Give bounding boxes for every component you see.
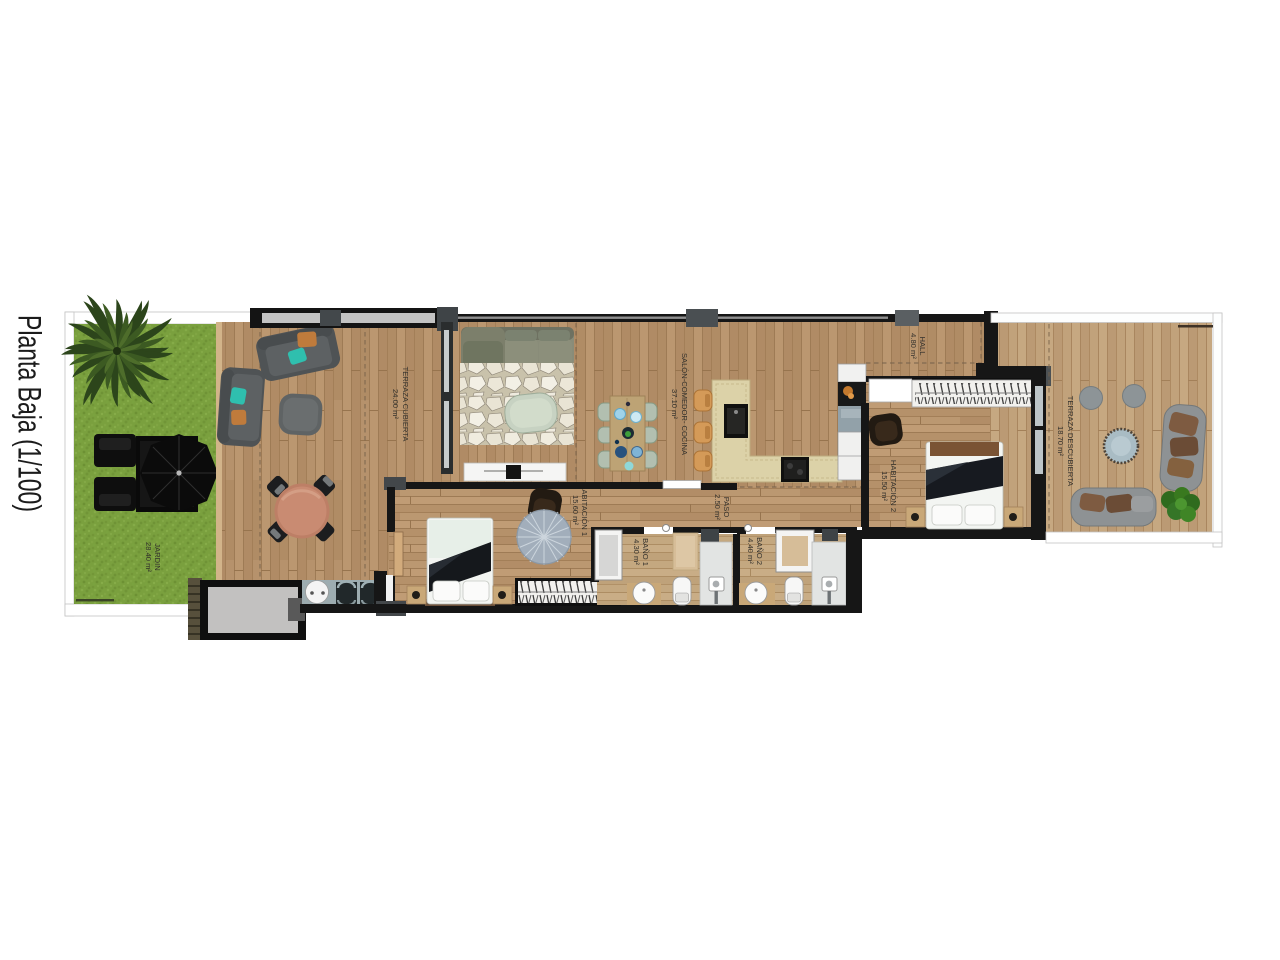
svg-text:TERRAZA CUBIERTA: TERRAZA CUBIERTA (401, 367, 410, 443)
svg-text:HABITACIÓN 2: HABITACIÓN 2 (889, 460, 898, 512)
svg-text:24.00 m²: 24.00 m² (391, 389, 400, 419)
svg-text:2.50 m²: 2.50 m² (713, 494, 722, 520)
svg-text:Planta Baja (1/100): Planta Baja (1/100) (12, 315, 48, 512)
svg-text:BAÑO 2: BAÑO 2 (755, 537, 764, 565)
svg-text:PASO: PASO (722, 497, 731, 518)
svg-text:HABITACIÓN 1: HABITACIÓN 1 (580, 484, 589, 536)
svg-text:JARDIN: JARDIN (153, 543, 162, 570)
svg-text:15.50 m²: 15.50 m² (880, 471, 889, 501)
svg-text:TERRAZA DESCUBIERTA: TERRAZA DESCUBIERTA (1066, 396, 1075, 487)
svg-text:4.40 m²: 4.40 m² (746, 538, 755, 564)
svg-text:18.70 m²: 18.70 m² (1056, 426, 1065, 456)
svg-text:37.10 m²: 37.10 m² (670, 389, 679, 419)
svg-text:28.40 m²: 28.40 m² (144, 542, 153, 572)
svg-text:SALÓN-COMEDOR- COCINA: SALÓN-COMEDOR- COCINA (680, 353, 689, 456)
svg-text:15.60 m²: 15.60 m² (571, 495, 580, 525)
svg-text:HALL: HALL (918, 337, 927, 356)
svg-text:4.80 m²: 4.80 m² (909, 333, 918, 359)
svg-text:4.30 m²: 4.30 m² (632, 539, 641, 565)
svg-text:BAÑO 1: BAÑO 1 (641, 538, 650, 566)
